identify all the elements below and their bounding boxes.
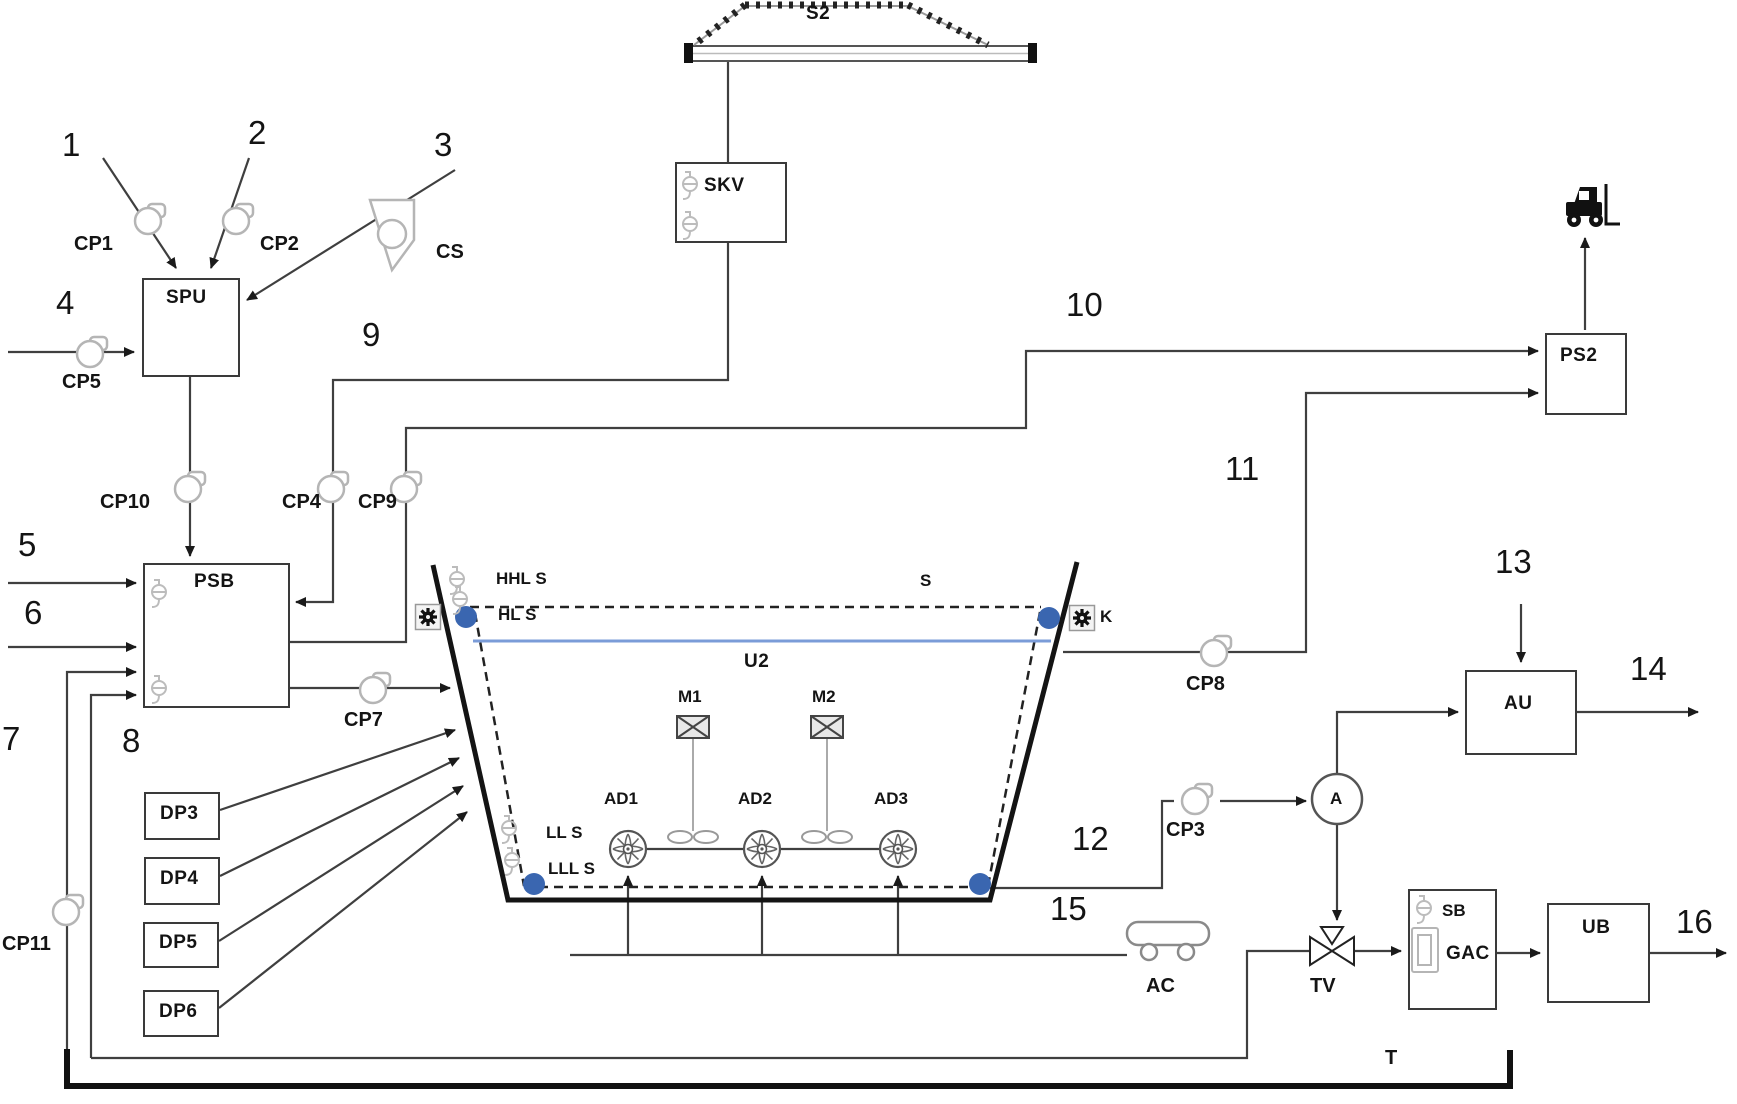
tv-valve-icon: [1310, 927, 1354, 965]
flow-line-dp3: [220, 730, 455, 810]
cp3-label: CP3: [1166, 820, 1205, 840]
pump-icon-cp2: [223, 204, 253, 234]
cp10-label: CP10: [100, 492, 150, 512]
process-flow-diagram: 1 2 3 4 5 6 7 8 9 10 11 12 13 14 15 16 S…: [0, 0, 1737, 1104]
u2-label: U2: [744, 652, 769, 671]
stream-number-14: 14: [1630, 652, 1667, 685]
stream-number-7: 7: [2, 722, 20, 755]
cp9-label: CP9: [358, 492, 397, 512]
stream-number-13: 13: [1495, 545, 1532, 578]
ad2-label: AD2: [738, 790, 772, 807]
pump-icon-cp8: [1201, 636, 1231, 666]
hls-label: HL S: [498, 606, 536, 623]
gear-icon-left: [416, 605, 441, 630]
tv-label: TV: [1310, 976, 1336, 996]
stream-number-9: 9: [362, 318, 380, 351]
stream-number-1: 1: [62, 128, 80, 161]
sb-label: SB: [1442, 902, 1466, 919]
stream-number-16: 16: [1676, 905, 1713, 938]
flow-line-analyzer-au: [1337, 712, 1458, 774]
flow-line-9-skv-cp4-psb: [296, 242, 728, 602]
dot-s: [1038, 607, 1060, 629]
stream-number-15: 15: [1050, 892, 1087, 925]
pump-icon-cp7: [360, 673, 390, 703]
lls-sensor-icon: [502, 816, 516, 843]
dot-llls-left: [523, 873, 545, 895]
spu-label: SPU: [166, 288, 207, 307]
cp1-label: CP1: [74, 234, 113, 254]
sludge-line-t: [67, 1049, 1510, 1086]
dot-llls-right: [969, 873, 991, 895]
pump-icon-cp10: [175, 472, 205, 502]
cs-sampler-icon: [370, 200, 414, 270]
stream-number-11: 11: [1225, 452, 1259, 485]
pump-icon-cp1: [135, 204, 165, 234]
stream-number-2: 2: [248, 116, 266, 149]
ac-label: AC: [1146, 976, 1175, 996]
hhls-label: HHL S: [496, 570, 547, 587]
pump-icon-cp5: [77, 337, 107, 367]
gear-icon-k: [1070, 606, 1095, 631]
dp6-label: DP6: [159, 1002, 197, 1021]
k-label: K: [1100, 608, 1112, 625]
stream-number-3: 3: [434, 128, 452, 161]
hhls-sensor-icon: [450, 567, 464, 594]
s-label: S: [920, 572, 931, 589]
pump-icon-cp3: [1182, 784, 1212, 814]
flow-line-11-cp8-ps2: [1063, 393, 1538, 652]
pump-icon-cp11: [53, 895, 83, 925]
return-line-tv-to-psb: [91, 951, 1312, 1058]
cs-label: CS: [436, 242, 464, 262]
cp5-label: CP5: [62, 372, 101, 392]
cp7-label: CP7: [344, 710, 383, 730]
analyzer-label: A: [1330, 790, 1342, 807]
dp4-label: DP4: [160, 869, 198, 888]
flow-line-dp6: [219, 812, 467, 1008]
s2-label: S2: [806, 4, 830, 23]
stream-number-10: 10: [1066, 288, 1103, 321]
stream-number-6: 6: [24, 596, 42, 629]
stream-number-4: 4: [56, 286, 74, 319]
dot-hls: [455, 606, 477, 628]
skv-label: SKV: [704, 176, 745, 195]
t-label: T: [1385, 1048, 1397, 1068]
m2-label: M2: [812, 688, 836, 705]
cp8-label: CP8: [1186, 674, 1225, 694]
m1-label: M1: [678, 688, 702, 705]
mixer-m2: [802, 716, 852, 843]
mixer-m1: [668, 716, 718, 843]
dp3-label: DP3: [160, 804, 198, 823]
llls-label: LLL S: [548, 860, 595, 877]
cp4-label: CP4: [282, 492, 321, 512]
ps2-label: PS2: [1560, 346, 1597, 365]
psb-label: PSB: [194, 572, 235, 591]
pump-icon-cp4: [318, 472, 348, 502]
aerator-icon-ad2: [744, 831, 780, 867]
stream-number-12: 12: [1072, 822, 1109, 855]
flow-line-dp4: [220, 758, 459, 876]
aerator-icon-ad1: [610, 831, 646, 867]
ad1-label: AD1: [604, 790, 638, 807]
aerator-icon-ad3: [880, 831, 916, 867]
ub-label: UB: [1582, 918, 1610, 937]
stream-number-8: 8: [122, 724, 140, 757]
flow-line-10-psb-cp9-ps2: [290, 351, 1538, 642]
dp5-label: DP5: [159, 933, 197, 952]
lls-label: LL S: [546, 824, 583, 841]
forklift-icon: [1566, 184, 1620, 227]
s2-hopper-shape: [684, 5, 1037, 63]
au-label: AU: [1504, 694, 1532, 713]
cp2-label: CP2: [260, 234, 299, 254]
flow-line-dp5: [219, 786, 463, 941]
gac-label: GAC: [1446, 944, 1490, 963]
ac-trailer-icon: [1127, 922, 1209, 960]
stream-number-5: 5: [18, 528, 36, 561]
cp11-label: CP11: [2, 934, 51, 954]
ad3-label: AD3: [874, 790, 908, 807]
